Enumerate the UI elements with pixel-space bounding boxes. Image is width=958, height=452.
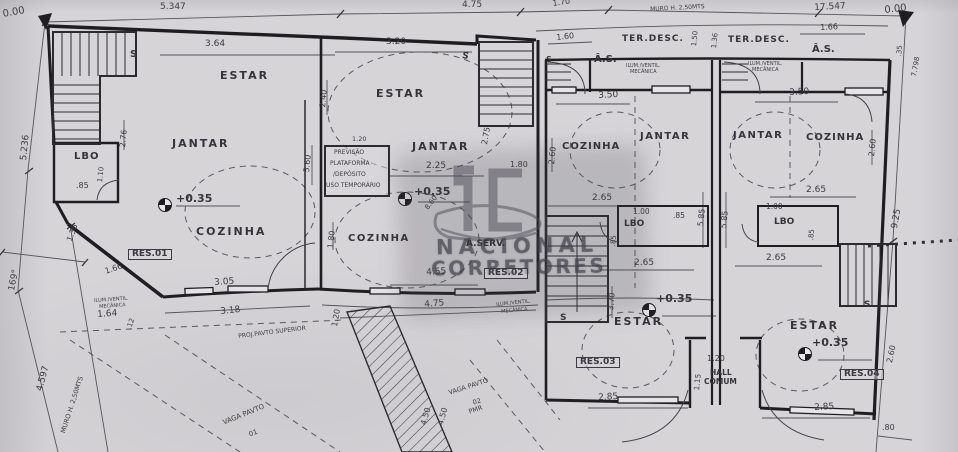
dim-label: 1.00 xyxy=(766,203,783,211)
dim-label: 1.20 xyxy=(707,355,725,363)
level-label: +0.35 xyxy=(812,337,848,349)
room-label-jantar: JANTAR xyxy=(172,138,229,150)
stair-label: S xyxy=(560,314,566,323)
room-label-lbo: LBO xyxy=(774,218,794,227)
dim-label: 1.66 xyxy=(820,23,838,32)
room-label-estar: ESTAR xyxy=(790,320,839,332)
unit-label-res02: RES.02 xyxy=(484,268,528,279)
floor-plan-scan: NACIONAL CORRETORES 0.005.3474.751.70MUR… xyxy=(0,0,958,452)
ramp-hatch xyxy=(347,306,452,452)
room-label-jantar: JANTAR xyxy=(733,131,783,142)
dim-label: 3.50 xyxy=(598,91,619,101)
room-label-jantar: JANTAR xyxy=(640,132,690,143)
dim-label: .35 xyxy=(896,45,904,57)
room-label-as: Â.S. xyxy=(594,55,617,66)
corner-markers xyxy=(38,10,914,30)
note-label: PREVISÃO xyxy=(334,150,364,156)
dim-label: 3.50 xyxy=(789,88,810,98)
unit-label-res01: RES.01 xyxy=(128,249,172,260)
dim-label: 1.00 xyxy=(633,208,650,216)
dim-label: 2.65 xyxy=(634,259,654,268)
dim-label: 2.65 xyxy=(806,186,826,195)
dim-label: .85 xyxy=(610,235,618,247)
room-label-hall: COMUM xyxy=(704,378,737,386)
dim-label: .85 xyxy=(76,182,89,190)
room-label-cozinha: COZINHA xyxy=(806,133,864,144)
room-label-hall: HALL xyxy=(710,369,732,377)
note-label: USO TEMPORÁRIO xyxy=(326,183,381,189)
dim-label: 2.25 xyxy=(426,162,446,171)
room-label-cozinha: COZINHA xyxy=(348,234,410,245)
stair-label: S xyxy=(546,56,552,64)
unit-label-res03: RES.03 xyxy=(576,357,620,368)
vent-note-label: MECÂNICA xyxy=(752,68,779,73)
dim-label: 2.85 xyxy=(598,393,619,403)
dim-label: 4.75 xyxy=(424,299,445,310)
dim-label: 2.65 xyxy=(592,194,612,203)
room-label-estar: ESTAR xyxy=(614,316,663,328)
room-label-jantar: JANTAR xyxy=(412,141,469,153)
level-label: +0.35 xyxy=(176,193,212,205)
dim-label: 1.80 xyxy=(510,161,528,169)
dim-label: 3.64 xyxy=(205,40,225,49)
room-label-terdesc: TER.DESC. xyxy=(622,35,684,44)
dim-label: .85 xyxy=(808,229,816,241)
room-label-estar: ESTAR xyxy=(376,88,425,100)
room-label-cozinha: COZINHA xyxy=(196,226,266,238)
note-label: PLATAFORMA xyxy=(330,161,370,167)
stair-label: S xyxy=(864,301,870,310)
dim-label: 4.55 xyxy=(426,268,447,279)
dim-label: 1.15 xyxy=(693,373,703,390)
stair-label: S xyxy=(130,50,137,61)
dim-label: 4.75 xyxy=(462,1,482,10)
dim-label: 2.65 xyxy=(766,254,786,263)
dim-label: 17.547 xyxy=(814,2,846,13)
dim-label: 1.64 xyxy=(97,310,118,321)
room-label-cozinha: COZINHA xyxy=(562,142,620,153)
room-label-terdesc: TER.DESC. xyxy=(728,36,790,45)
dim-label: 1.20 xyxy=(352,136,366,143)
dim-label: 5.347 xyxy=(160,3,186,12)
level-label: +0.35 xyxy=(656,293,692,305)
room-label-estar: ESTAR xyxy=(220,70,269,82)
note-label: /DEPÓSITO xyxy=(333,172,366,178)
unit-label-res04: RES.04 xyxy=(840,369,884,380)
vent-note-label: MECÂNICA xyxy=(630,70,657,75)
dim-label: .85 xyxy=(673,212,685,220)
dim-label: 2.85 xyxy=(814,403,835,413)
room-label-as: Â.S. xyxy=(812,45,835,56)
dim-label: 3.05 xyxy=(214,278,235,289)
room-label-aserv: Â.SERV. xyxy=(466,240,505,249)
dim-label: .80 xyxy=(882,424,895,432)
dim-label: 3.20 xyxy=(386,38,406,47)
room-label-lbo: LBO xyxy=(624,220,644,229)
room-label-lbo: LBO xyxy=(74,152,100,163)
